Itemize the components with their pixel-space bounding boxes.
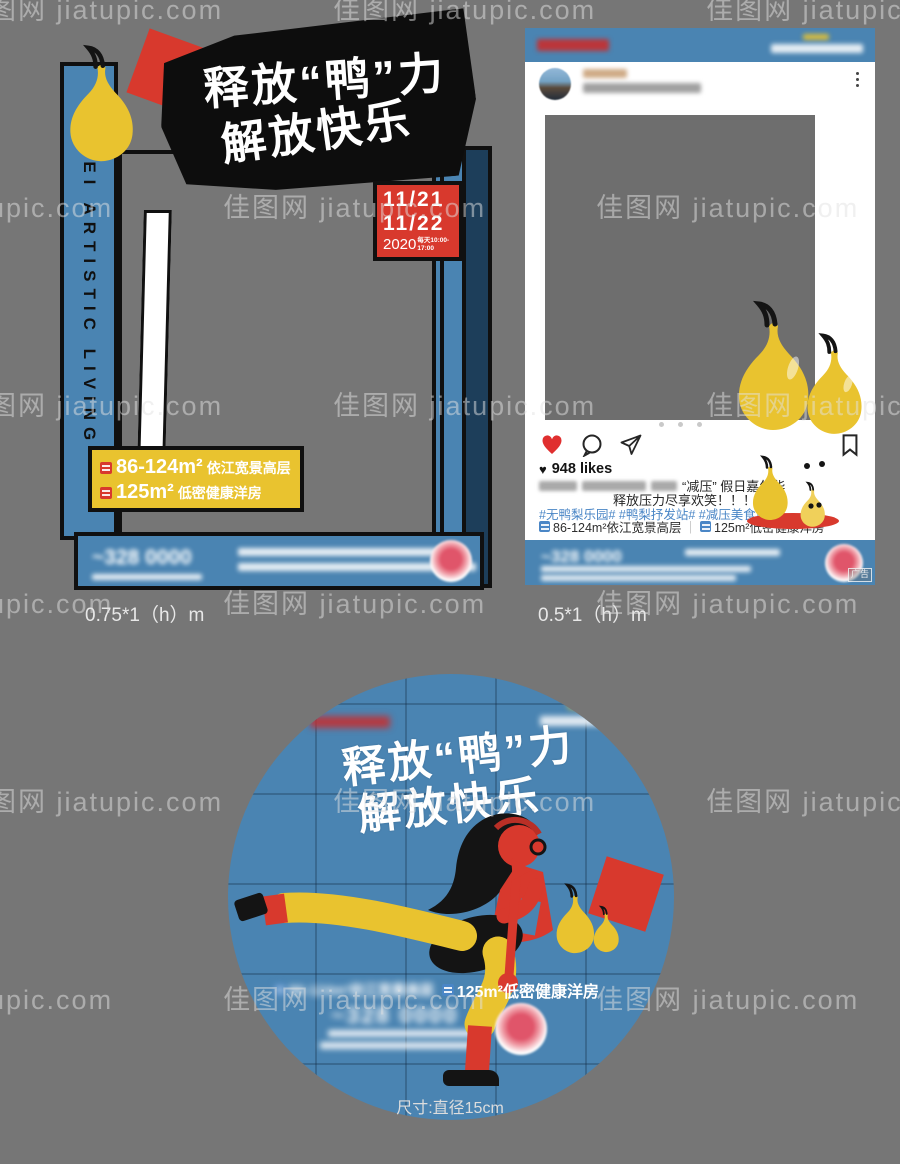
- mini-logo-icon: [539, 521, 550, 532]
- circle-badge-mockup: 释放“鸭”力 解放快乐: [228, 674, 674, 1120]
- social-header-bar: [525, 28, 875, 62]
- blurred-text-bar: [92, 574, 202, 580]
- share-icon: [619, 433, 643, 457]
- event-date-2: 11/22: [383, 212, 453, 236]
- blurred-text-bar: [803, 34, 829, 40]
- exercising-person-illustration: [236, 804, 556, 1104]
- photo-frame-prop: JIMEI ARTISTIC LIVING ~328 0000 释放“鸭”力 解…: [60, 50, 492, 596]
- banner-area-2: 125m²: [116, 480, 174, 505]
- banner-desc-2: 低密健康洋房: [178, 485, 262, 503]
- social-footer-bar: ~328 0000 广告: [525, 540, 875, 585]
- comment-icon: [580, 433, 604, 457]
- frame-footer-bar: ~328 0000: [74, 532, 484, 590]
- banner-area-1: 86-124m²: [116, 455, 203, 480]
- event-date-1: 11/21: [383, 188, 453, 212]
- blurred-text-bar: [541, 575, 736, 581]
- blurred-text-bar: [771, 44, 863, 53]
- property-divider: ｜: [685, 517, 698, 536]
- blurred-text-bar: [582, 481, 646, 491]
- pear-decor-icon: [721, 300, 847, 470]
- blurred-property: 86-124m²依江宽景高层: [274, 980, 434, 1000]
- blurred-text-bar: [685, 549, 780, 556]
- brand-flower-logo: [495, 1003, 547, 1055]
- pear-decor-icon: [546, 860, 658, 968]
- blurred-property-text: 86-124m²依江宽景高层: [289, 980, 434, 1000]
- mini-logo-icon: [442, 984, 454, 996]
- blurred-text-bar: [238, 548, 463, 556]
- mini-logo-icon: [700, 521, 711, 532]
- footer-phone: ~328 0000: [541, 547, 622, 567]
- brand-flower-logo: [430, 540, 472, 582]
- event-year: 2020: [383, 236, 416, 254]
- likes-count: 948 likes: [552, 461, 612, 477]
- property-1: 86-124m²依江宽景高层: [553, 517, 682, 536]
- blurred-text-bar: [541, 566, 751, 572]
- avatar: [539, 68, 571, 100]
- circle-size-label: 尺寸:直径15cm: [396, 1094, 504, 1118]
- blurred-text-bar: [651, 481, 677, 491]
- banner-desc-1: 依江宽景高层: [207, 460, 291, 478]
- mini-logo-icon: [100, 487, 112, 499]
- pear-face-icon: [743, 452, 843, 530]
- circle-property-row: 86-124m²依江宽景高层 125m²低密健康洋房: [274, 978, 599, 1002]
- mini-logo-icon: [274, 984, 286, 996]
- design-preview-canvas: JIMEI ARTISTIC LIVING ~328 0000 释放“鸭”力 解…: [0, 0, 900, 1164]
- circle-property-label: 125m²低密健康洋房: [442, 978, 599, 1002]
- mini-logo-icon: [100, 462, 112, 474]
- blurred-username: [583, 83, 701, 93]
- circle-property-text: 125m²低密健康洋房: [457, 978, 599, 1002]
- event-date-box: 11/21 11/22 2020每天10:00-17:00: [373, 181, 463, 261]
- post-menu-icon: [856, 72, 859, 87]
- social-size-label: 0.5*1（h）m: [538, 600, 647, 627]
- property-banner: 86-124m² 依江宽景高层 125m² 低密健康洋房: [88, 446, 304, 512]
- likes-heart-icon: ♥: [539, 463, 547, 476]
- blurred-logo: [537, 39, 609, 51]
- likes-row: ♥ 948 likes: [539, 461, 612, 477]
- social-post-mockup: ♥ 948 likes “减压” 假日嘉年华 释放压力尽享欢笑！！！！ #无鸭梨…: [525, 28, 875, 585]
- event-time: 每天10:00-17:00: [417, 237, 453, 253]
- blurred-logo: [310, 716, 390, 728]
- like-icon: [539, 433, 565, 457]
- frame-size-label: 0.75*1（h）m: [85, 600, 204, 627]
- frame-footer-phone: ~328 0000: [92, 546, 192, 570]
- blurred-username: [583, 69, 627, 78]
- blurred-text-bar: [539, 481, 577, 491]
- blurred-text-bar: [568, 702, 594, 709]
- ad-tag: 广告: [848, 568, 872, 582]
